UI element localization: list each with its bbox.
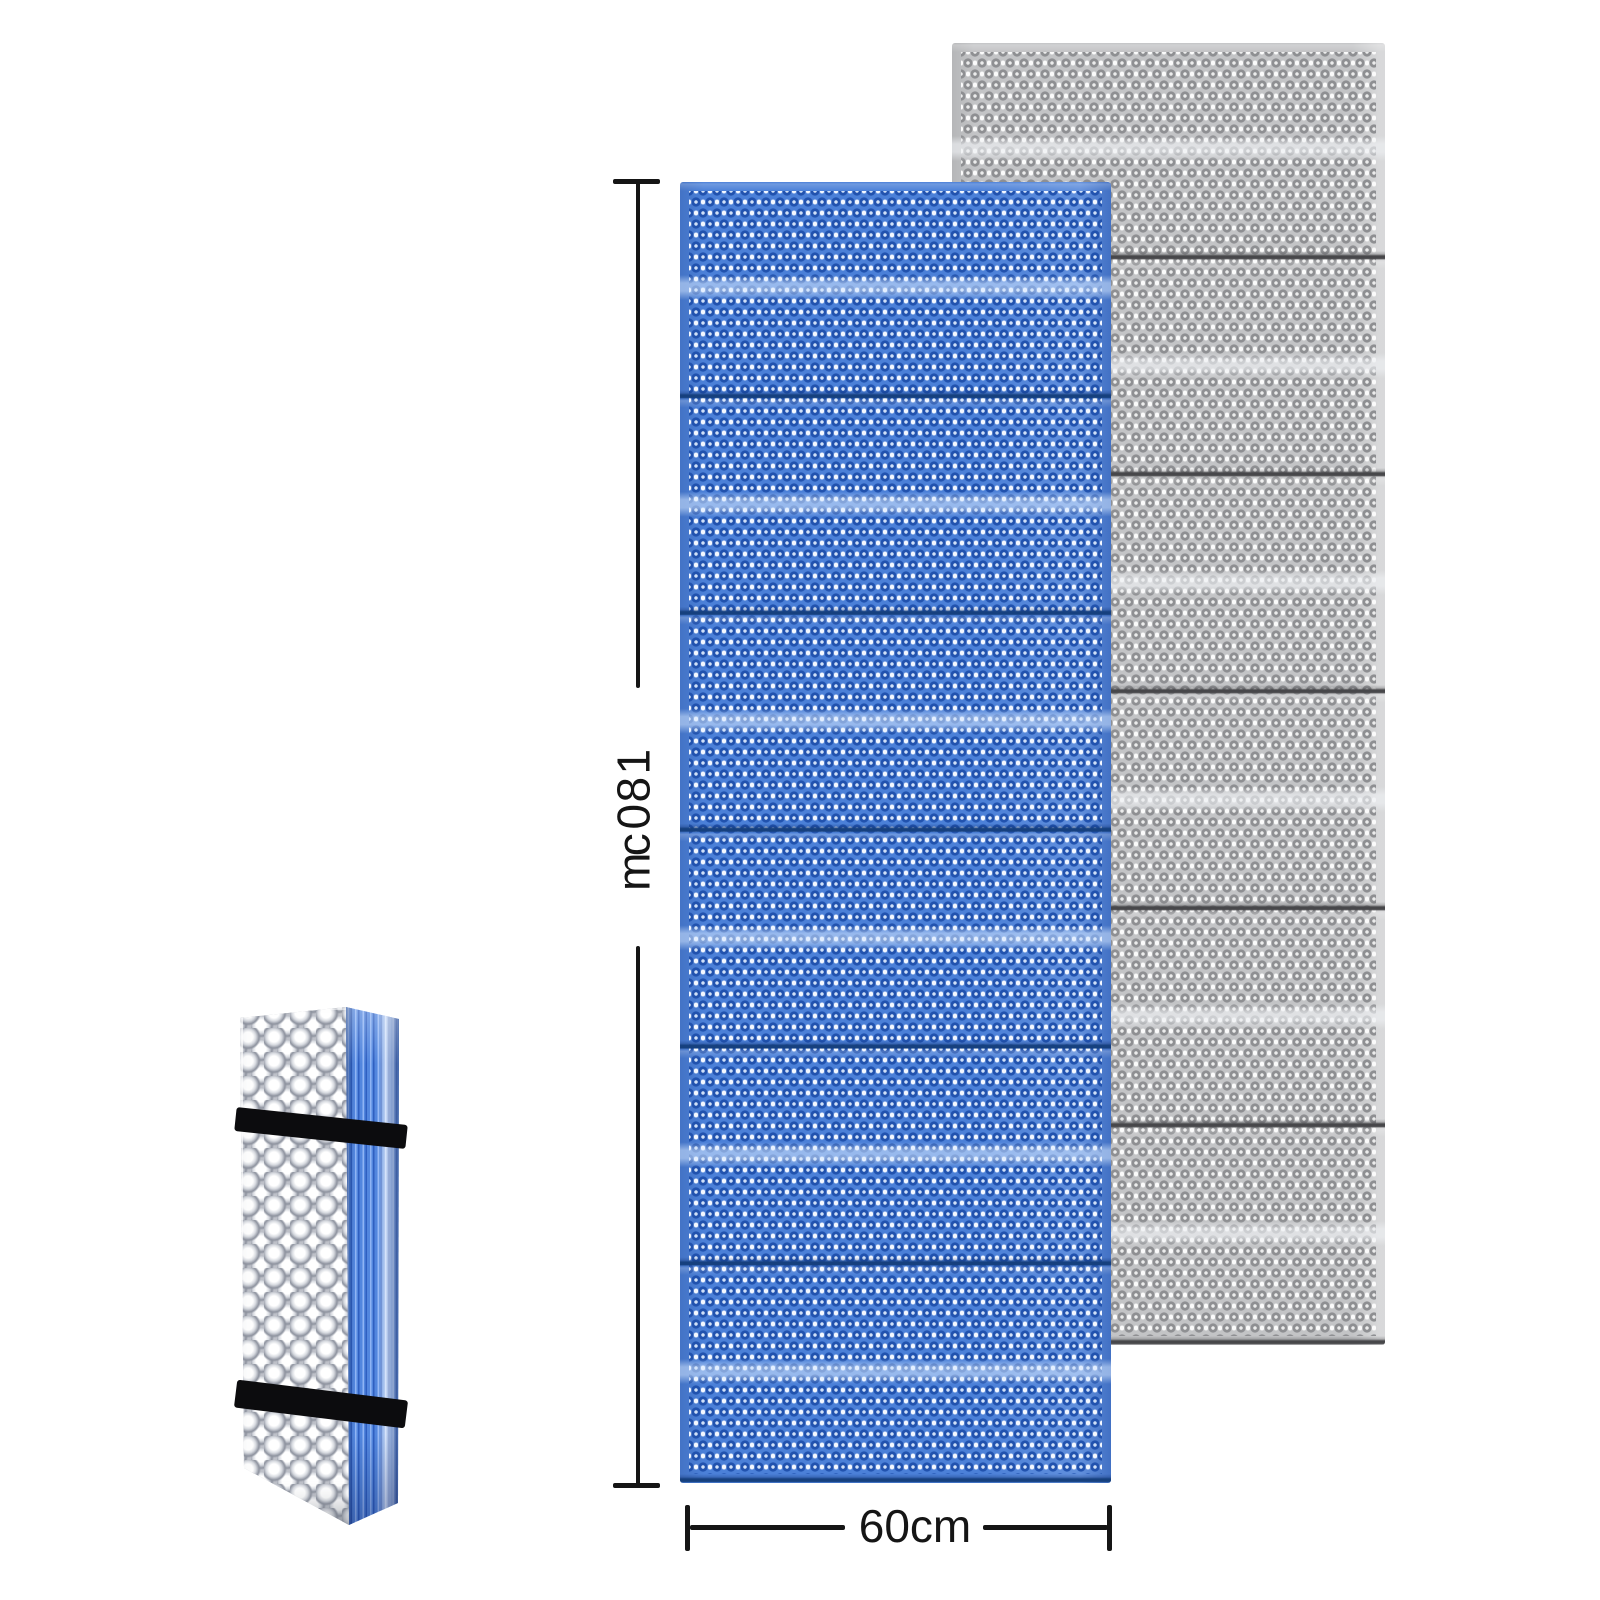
folded-mat (238, 1004, 404, 1530)
height-dim-tick-bottom (613, 1483, 660, 1488)
height-dim-line-lower (636, 946, 640, 1486)
blue-mat-unfolded (680, 182, 1111, 1483)
height-dim-label: 180cm (607, 748, 661, 886)
width-dim-line-right (983, 1525, 1108, 1530)
width-dim-line-left (690, 1525, 845, 1530)
product-photo-canvas: 180cm 60cm (0, 0, 1600, 1600)
width-dim-tick-right (1107, 1505, 1112, 1551)
height-dim-line-upper (636, 182, 640, 688)
width-dim-label: 60cm (845, 1499, 985, 1554)
